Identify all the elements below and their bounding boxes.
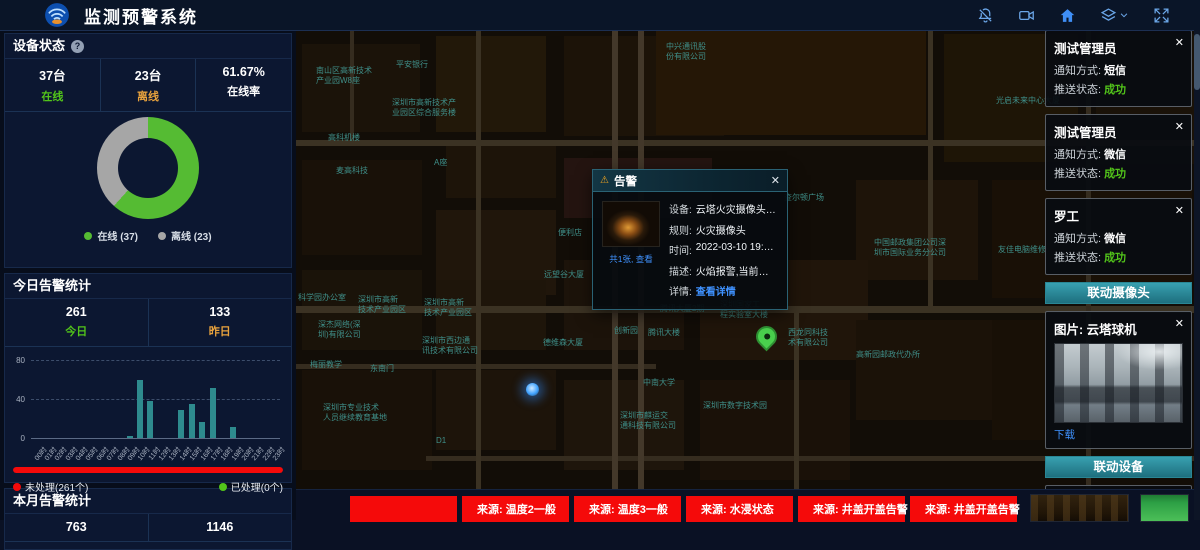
alert-popup-title: 告警 xyxy=(614,173,766,189)
warning-icon: ⚠ xyxy=(600,175,609,186)
map-building-block xyxy=(302,44,420,132)
snapshot-view-link[interactable]: 共1张, 查看 xyxy=(602,253,660,265)
ticker-label: 来源: 温度2一般 xyxy=(477,504,556,516)
home-icon[interactable] xyxy=(1059,7,1076,24)
card-field-label: 推送状态: xyxy=(1054,168,1101,180)
map-place-label: 高科机楼 xyxy=(328,133,360,143)
ticker-label: 来源: 温度3一般 xyxy=(589,504,668,516)
today-alarm-panel: 今日告警统计 261 今日 133 昨日 04080 00时01时02时03时0… xyxy=(4,273,292,483)
fullscreen-icon[interactable] xyxy=(1153,7,1170,24)
bar-slot xyxy=(218,361,228,438)
linked-cameras-header[interactable]: 联动摄像头 xyxy=(1045,282,1192,304)
stat-value: 763 xyxy=(5,520,148,534)
map-place-label: 深杰网络(深 圳)有限公司 xyxy=(318,320,361,341)
bar-slot xyxy=(145,361,155,438)
x-tick: 01时 xyxy=(41,443,51,465)
alert-snapshot-column: 共1张, 查看 xyxy=(602,201,660,304)
header-toolbar xyxy=(977,7,1170,24)
card-field-row: 通知方式:微信 xyxy=(1054,230,1183,246)
panel-title: 本月告警统计 xyxy=(13,489,91,513)
stat-value: 37台 xyxy=(5,65,100,84)
bar-slot xyxy=(124,361,134,438)
stat-label: 昨日 xyxy=(149,323,292,339)
device-donut xyxy=(97,117,199,219)
stat-label: 在线率 xyxy=(196,83,291,99)
map-place-label: 深圳市高新 技术产业园区 xyxy=(358,295,406,316)
y-tick-label: 0 xyxy=(9,434,25,443)
stat-value: 261 xyxy=(5,305,148,319)
ticker-tiles: 来源: 温度2一般来源: 温度3一般来源: 水浸状态来源: 井盖开盖告警来源: … xyxy=(350,496,1017,522)
alert-ticker: 来源: 温度2一般来源: 温度3一般来源: 水浸状态来源: 井盖开盖告警来源: … xyxy=(296,489,1200,520)
map-place-label: 中兴通讯股 份有限公司 xyxy=(666,42,706,63)
bar-slot xyxy=(228,361,238,438)
help-icon[interactable]: ? xyxy=(71,40,84,53)
bar-slot xyxy=(156,361,166,438)
panel-header: 设备状态 ? xyxy=(5,34,291,59)
scrollbar-thumb[interactable] xyxy=(1194,34,1200,90)
close-icon[interactable]: ✕ xyxy=(771,174,780,187)
x-tick: 04时 xyxy=(73,443,83,465)
bar-slot xyxy=(62,361,72,438)
map-place-label: 深圳市数字技术园 xyxy=(703,401,767,411)
ticker-label: 来源: 水浸状态 xyxy=(701,504,774,516)
notification-stack: ✕测试管理员通知方式:短信推送状态:成功✕测试管理员通知方式:微信推送状态:成功… xyxy=(1045,30,1192,275)
bell-mute-icon[interactable] xyxy=(977,7,994,24)
alert-field-label: 详情: xyxy=(669,283,692,298)
map-place-label: 深圳市高新 技术产业园区 xyxy=(424,298,472,319)
app-header: 监测预警系统 xyxy=(0,0,1200,31)
device-legend: 在线 (37)离线 (23) xyxy=(5,228,291,243)
hour-bar-chart: 04080 00时01时02时03时04时05时06时07时08时09时10时1… xyxy=(11,353,285,465)
stat-label: 在线 xyxy=(5,88,100,104)
alert-ticker-tile[interactable]: 来源: 井盖开盖告警 xyxy=(798,496,905,522)
card-field-row: 推送状态:成功 xyxy=(1054,81,1183,97)
x-tick: 11时 xyxy=(145,443,155,465)
close-icon[interactable]: ✕ xyxy=(1175,317,1184,330)
donut-chart-wrap xyxy=(5,116,291,220)
stat-today: 261 今日 xyxy=(5,299,148,346)
map-building-block xyxy=(856,180,978,280)
alert-popup: ⚠ 告警 ✕ 共1张, 查看 设备:云塔火灾摄像头202规则:火灾摄像头时间:2… xyxy=(593,170,787,309)
view-details-link[interactable]: 查看详情 xyxy=(696,283,736,298)
map-place-label: 中国邮政集团公司深 圳市国际业务分公司 xyxy=(874,238,946,259)
x-tick: 06时 xyxy=(93,443,103,465)
close-icon[interactable]: ✕ xyxy=(1175,120,1184,133)
card-title: 罗工 xyxy=(1054,206,1183,225)
linked-devices-header[interactable]: 联动设备 xyxy=(1045,456,1192,478)
map-building-block xyxy=(700,380,850,480)
map-place-label: 科学园办公室 xyxy=(298,293,346,303)
card-field-value: 成功 xyxy=(1104,84,1126,96)
alert-field-label: 描述: xyxy=(669,263,692,278)
stat-offline: 23台 离线 xyxy=(100,59,196,111)
bar xyxy=(189,404,195,438)
alert-field-value: 火灾摄像头 xyxy=(696,222,746,237)
alert-ticker-tile[interactable]: 来源: 温度3一般 xyxy=(574,496,681,522)
x-tick-label: 23时 xyxy=(270,445,287,463)
bar xyxy=(137,380,143,438)
map-road xyxy=(928,30,933,306)
y-tick-label: 80 xyxy=(9,356,25,365)
today-stats-row: 261 今日 133 昨日 xyxy=(5,299,291,347)
right-panel: ✕测试管理员通知方式:短信推送状态:成功✕测试管理员通知方式:微信推送状态:成功… xyxy=(1045,30,1192,492)
legend-label: 离线 (23) xyxy=(171,228,212,243)
stat-online: 37台 在线 xyxy=(5,59,100,111)
progress-fill xyxy=(13,467,283,473)
card-field-label: 通知方式: xyxy=(1054,233,1101,245)
map-place-label: 深圳市高新技术产 业园区综合服务楼 xyxy=(392,98,456,119)
panel-title: 设备状态 xyxy=(13,34,65,58)
alert-field-label: 设备: xyxy=(669,201,692,216)
card-field-value: 短信 xyxy=(1104,65,1126,77)
x-tick: 03时 xyxy=(62,443,72,465)
month-stats-row: 763 1146 xyxy=(5,514,291,542)
x-tick: 05时 xyxy=(83,443,93,465)
bar-slot xyxy=(270,361,280,438)
legend-item: 离线 (23) xyxy=(158,228,212,243)
device-stats-row: 37台 在线 23台 离线 61.67% 在线率 xyxy=(5,59,291,112)
bar-slot xyxy=(239,361,249,438)
scrollbar[interactable] xyxy=(1194,30,1200,520)
x-tick: 13时 xyxy=(166,443,176,465)
x-tick: 19时 xyxy=(228,443,238,465)
bar-slot xyxy=(135,361,145,438)
card-title: 测试管理员 xyxy=(1054,122,1183,141)
bar-slot xyxy=(114,361,124,438)
chevron-down-icon xyxy=(1119,10,1129,20)
map-place-label: 深圳市西边通 讯技术有限公司 xyxy=(422,336,478,357)
bar xyxy=(210,388,216,438)
y-axis: 04080 xyxy=(11,361,27,439)
x-tick: 02时 xyxy=(52,443,62,465)
legend-dot-icon xyxy=(158,232,166,240)
y-tick-label: 40 xyxy=(9,395,25,404)
stat-value: 61.67% xyxy=(196,65,291,79)
map-place-label: 梅丽教学 xyxy=(310,360,342,370)
alert-field-value: 2022-03-10 19:13:07 xyxy=(696,242,778,257)
alert-field-row: 设备:云塔火灾摄像头202 xyxy=(669,201,778,216)
bar xyxy=(127,436,133,438)
card-field-row: 通知方式:微信 xyxy=(1054,146,1183,162)
bar-slot xyxy=(93,361,103,438)
stat-value: 133 xyxy=(149,305,292,319)
x-tick: 17时 xyxy=(207,443,217,465)
map-place-label: 便利店 xyxy=(558,228,582,238)
x-tick: 10时 xyxy=(135,443,145,465)
bar-slot xyxy=(73,361,83,438)
panel-header: 今日告警统计 xyxy=(5,274,291,299)
map-place-label: 深圳市专业技术 人员继续教育基地 xyxy=(323,403,387,424)
map-place-label: 德维森大厦 xyxy=(543,338,583,348)
card-field-label: 通知方式: xyxy=(1054,149,1101,161)
bar-slot xyxy=(52,361,62,438)
map-place-label: 远望谷大厦 xyxy=(544,270,584,280)
layers-icon[interactable] xyxy=(1100,7,1129,24)
card-field-label: 推送状态: xyxy=(1054,252,1101,264)
stat-month-a: 763 xyxy=(5,514,148,541)
card-field-row: 推送状态:成功 xyxy=(1054,249,1183,265)
map-place-label: 高新园邮政代办所 xyxy=(856,350,920,360)
map-place-label: 查尔顿广场 xyxy=(784,193,824,203)
video-camera-icon[interactable] xyxy=(1018,7,1035,24)
card-field-value: 微信 xyxy=(1104,233,1126,245)
card-field-label: 推送状态: xyxy=(1054,84,1101,96)
bar-slot xyxy=(207,361,217,438)
bar xyxy=(199,422,205,438)
map-place-label: 东南门 xyxy=(370,364,394,374)
bar-slot xyxy=(104,361,114,438)
notification-card: ✕测试管理员通知方式:微信推送状态:成功 xyxy=(1045,114,1192,191)
x-tick: 14时 xyxy=(176,443,186,465)
camera-snapshot-image[interactable] xyxy=(1054,343,1183,423)
stat-month-b: 1146 xyxy=(148,514,292,541)
x-axis: 00时01时02时03时04时05时06时07时08时09时10时11时12时1… xyxy=(31,443,280,465)
bar-slot xyxy=(166,361,176,438)
map-place-label: 腾讯大楼 xyxy=(648,328,680,338)
card-title: 测试管理员 xyxy=(1054,38,1183,57)
map-road xyxy=(476,30,481,520)
bar-slot xyxy=(31,361,41,438)
device-status-panel: 设备状态 ? 37台 在线 23台 离线 61.67% 在线率 xyxy=(4,33,292,268)
stat-yesterday: 133 昨日 xyxy=(148,299,292,346)
alert-ticker-tile[interactable] xyxy=(350,496,457,522)
close-icon[interactable]: ✕ xyxy=(1175,36,1184,49)
bar-slot xyxy=(176,361,186,438)
stat-value: 1146 xyxy=(149,520,292,534)
month-alarm-panel: 本月告警统计 763 1146 xyxy=(4,488,292,550)
alert-field-row: 描述:火焰报警,当前触发值为... xyxy=(669,263,778,278)
legend-dot-icon xyxy=(84,232,92,240)
map-building-block xyxy=(436,370,556,450)
panel-title: 今日告警统计 xyxy=(13,274,91,298)
card-field-value: 成功 xyxy=(1104,252,1126,264)
map-place-label: 平安银行 xyxy=(396,60,428,70)
donut-hole xyxy=(118,138,178,198)
map-place-label: 南山区高新技术 产业园W8座 xyxy=(316,66,372,87)
bar-slot xyxy=(187,361,197,438)
pin-hole-icon xyxy=(762,332,770,340)
card-field-row: 通知方式:短信 xyxy=(1054,62,1183,78)
x-tick: 16时 xyxy=(197,443,207,465)
x-tick: 21时 xyxy=(249,443,259,465)
handled-dot-icon xyxy=(219,483,227,491)
alert-popup-titlebar: ⚠ 告警 ✕ xyxy=(593,170,787,192)
map-place-label: D1 xyxy=(436,436,446,446)
x-tick: 00时 xyxy=(31,443,41,465)
app-root: 监测预警系统 南山区高新技术 产业园W8座平安银行深圳市高新技术产 业园区综合服… xyxy=(0,0,1200,520)
map-place-label: 西龙同科技 术有限公司 xyxy=(788,328,828,349)
map-place-label: 麦高科技 xyxy=(336,166,368,176)
card-title: 图片: 云塔球机 xyxy=(1054,319,1183,338)
alert-photo-thumbnail[interactable] xyxy=(1140,494,1189,522)
alert-field-row: 详情:查看详情 xyxy=(669,283,778,298)
bar-plot xyxy=(31,361,280,439)
bar-slot xyxy=(83,361,93,438)
notification-card: ✕罗工通知方式:微信推送状态:成功 xyxy=(1045,198,1192,275)
x-tick: 09时 xyxy=(124,443,134,465)
alert-field-label: 时间: xyxy=(669,242,692,257)
alert-photo-thumbnail[interactable] xyxy=(1030,494,1129,522)
bar-slot xyxy=(41,361,51,438)
progress-bar xyxy=(13,467,283,473)
map-place-label: 创新园 xyxy=(614,326,638,336)
bar xyxy=(230,427,236,438)
map-place-label: 深圳市麒运交 通科技有限公司 xyxy=(620,411,676,432)
page-title: 监测预警系统 xyxy=(84,3,198,28)
x-tick: 08时 xyxy=(114,443,124,465)
stat-value: 23台 xyxy=(101,65,196,84)
left-sidebar: 设备状态 ? 37台 在线 23台 离线 61.67% 在线率 xyxy=(0,30,296,520)
x-tick: 20时 xyxy=(239,443,249,465)
card-field-label: 通知方式: xyxy=(1054,65,1101,77)
alert-field-row: 时间:2022-03-10 19:13:07 xyxy=(669,242,778,257)
x-tick: 15时 xyxy=(187,443,197,465)
alert-field-value: 云塔火灾摄像头202 xyxy=(696,201,778,216)
app-logo-icon xyxy=(44,2,70,28)
bar-slot xyxy=(249,361,259,438)
map-building-block xyxy=(446,140,556,198)
map-place-label: 中南大学 xyxy=(643,378,675,388)
x-tick: 23时 xyxy=(270,443,280,465)
bar xyxy=(147,401,153,438)
alert-snapshot-image[interactable] xyxy=(602,201,660,247)
card-field-row: 推送状态:成功 xyxy=(1054,165,1183,181)
legend-label: 在线 (37) xyxy=(97,228,138,243)
alert-ticker-tile[interactable]: 来源: 水浸状态 xyxy=(686,496,793,522)
alert-field-label: 规则: xyxy=(669,222,692,237)
bar-slot xyxy=(197,361,207,438)
stat-label: 离线 xyxy=(101,88,196,104)
map-place-label: 友佳电脑维修 xyxy=(998,245,1046,255)
bar-slot xyxy=(259,361,269,438)
device-dot-marker[interactable] xyxy=(526,383,539,396)
alert-field-row: 规则:火灾摄像头 xyxy=(669,222,778,237)
legend-handled: 已处理(0个) xyxy=(219,479,283,494)
stat-online-rate: 61.67% 在线率 xyxy=(195,59,291,111)
x-tick: 18时 xyxy=(218,443,228,465)
alert-popup-body: 共1张, 查看 设备:云塔火灾摄像头202规则:火灾摄像头时间:2022-03-… xyxy=(593,192,787,309)
map-building-block xyxy=(856,320,1006,420)
x-tick: 12时 xyxy=(156,443,166,465)
camera-card: ✕ 图片: 云塔球机 下载 xyxy=(1045,311,1192,449)
ticker-label: 来源: 井盖开盖告警 xyxy=(813,504,908,516)
x-tick: 22时 xyxy=(259,443,269,465)
stat-label: 今日 xyxy=(5,323,148,339)
card-field-value: 成功 xyxy=(1104,168,1126,180)
legend-item: 在线 (37) xyxy=(84,228,138,243)
card-field-value: 微信 xyxy=(1104,149,1126,161)
download-link[interactable]: 下载 xyxy=(1054,427,1183,442)
x-tick: 07时 xyxy=(104,443,114,465)
map-place-label: A座 xyxy=(434,158,447,168)
notification-card: ✕测试管理员通知方式:短信推送状态:成功 xyxy=(1045,30,1192,107)
ticker-label: 来源: 井盖开盖告警 xyxy=(925,504,1020,516)
close-icon[interactable]: ✕ xyxy=(1175,204,1184,217)
alert-field-value: 火焰报警,当前触发值为... xyxy=(696,263,778,278)
alert-fields: 设备:云塔火灾摄像头202规则:火灾摄像头时间:2022-03-10 19:13… xyxy=(669,201,778,304)
bar xyxy=(178,410,184,438)
alert-ticker-tile[interactable]: 来源: 井盖开盖告警 xyxy=(910,496,1017,522)
alert-ticker-tile[interactable]: 来源: 温度2一般 xyxy=(462,496,569,522)
legend-label: 已处理(0个) xyxy=(231,479,283,494)
